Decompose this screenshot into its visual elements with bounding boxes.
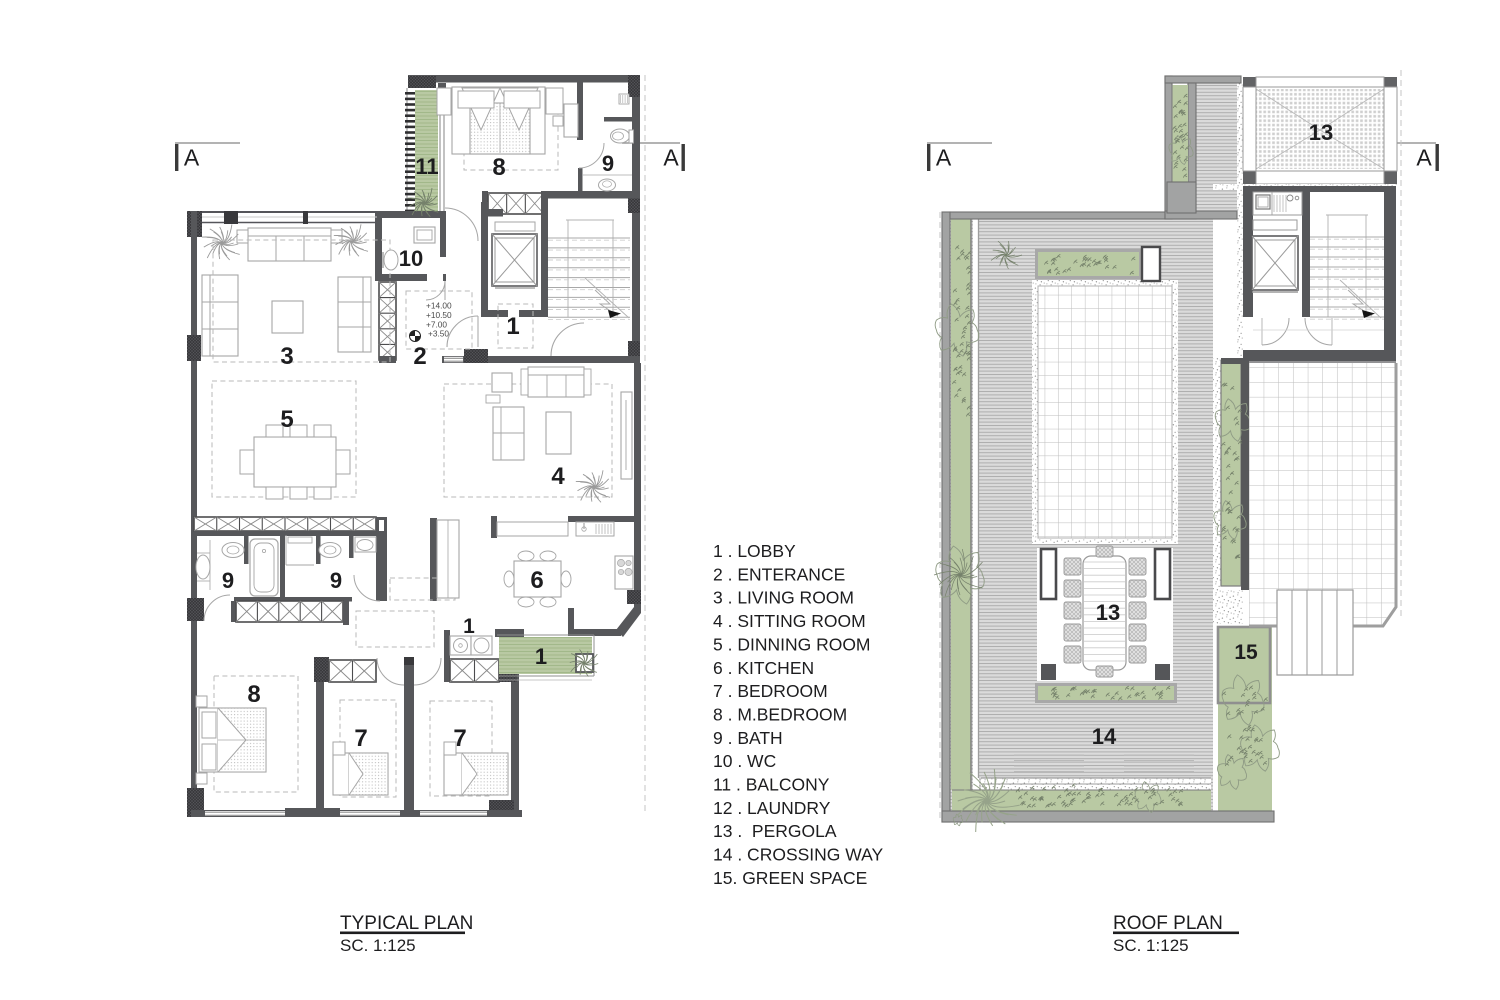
svg-text:SC. 1:125: SC. 1:125 — [1113, 936, 1189, 955]
svg-text:+14.00: +14.00 — [426, 301, 452, 311]
svg-text:1: 1 — [535, 644, 547, 669]
svg-text:2 . ENTERANCE: 2 . ENTERANCE — [713, 564, 845, 584]
svg-text:9: 9 — [330, 568, 342, 593]
svg-text:9: 9 — [222, 568, 234, 593]
svg-text:4: 4 — [551, 463, 565, 490]
svg-text:3 . LIVING ROOM: 3 . LIVING ROOM — [713, 588, 854, 608]
svg-text:6 . KITCHEN: 6 . KITCHEN — [713, 658, 814, 678]
svg-text:9 . BATH: 9 . BATH — [713, 728, 783, 748]
svg-text:1: 1 — [506, 313, 519, 340]
svg-text:ROOF PLAN: ROOF PLAN — [1113, 913, 1223, 934]
svg-text:14: 14 — [1092, 724, 1117, 749]
svg-text:15: 15 — [1234, 641, 1258, 664]
svg-text:7 . BEDROOM: 7 . BEDROOM — [713, 681, 828, 701]
svg-text:6: 6 — [530, 567, 543, 594]
svg-text:10 . WC: 10 . WC — [713, 751, 776, 771]
svg-text:11 . BALCONY: 11 . BALCONY — [713, 775, 830, 795]
svg-text:TYPICAL PLAN: TYPICAL PLAN — [340, 913, 473, 934]
svg-text:+3.50: +3.50 — [428, 329, 449, 339]
svg-text:8 . M.BEDROOM: 8 . M.BEDROOM — [713, 704, 847, 724]
svg-text:13: 13 — [1096, 600, 1120, 625]
svg-text:A: A — [1416, 145, 1432, 171]
svg-text:SC. 1:125: SC. 1:125 — [340, 936, 416, 955]
svg-text:15. GREEN SPACE: 15. GREEN SPACE — [713, 868, 867, 888]
svg-text:7: 7 — [354, 725, 367, 752]
svg-text:A: A — [936, 145, 952, 171]
svg-text:8: 8 — [492, 154, 505, 181]
svg-text:4 . SITTING ROOM: 4 . SITTING ROOM — [713, 611, 866, 631]
svg-text:1 . LOBBY: 1 . LOBBY — [713, 541, 796, 561]
svg-text:2: 2 — [413, 343, 426, 370]
svg-text:1: 1 — [463, 615, 475, 638]
svg-text:13 . PERGOLA: 13 . PERGOLA — [713, 821, 837, 841]
svg-text:3: 3 — [280, 343, 293, 370]
svg-text:A: A — [663, 145, 679, 171]
svg-text:9: 9 — [602, 151, 614, 176]
svg-text:5: 5 — [280, 406, 293, 433]
svg-text:14 . CROSSING WAY: 14 . CROSSING WAY — [713, 845, 883, 865]
svg-text:10: 10 — [399, 246, 423, 271]
svg-text:A: A — [184, 145, 200, 171]
svg-text:13: 13 — [1309, 120, 1333, 145]
svg-text:12 . LAUNDRY: 12 . LAUNDRY — [713, 798, 831, 818]
svg-text:11: 11 — [415, 154, 438, 179]
svg-text:8: 8 — [247, 681, 260, 708]
svg-text:5 . DINNING ROOM: 5 . DINNING ROOM — [713, 634, 871, 654]
svg-text:+10.50: +10.50 — [426, 310, 452, 320]
